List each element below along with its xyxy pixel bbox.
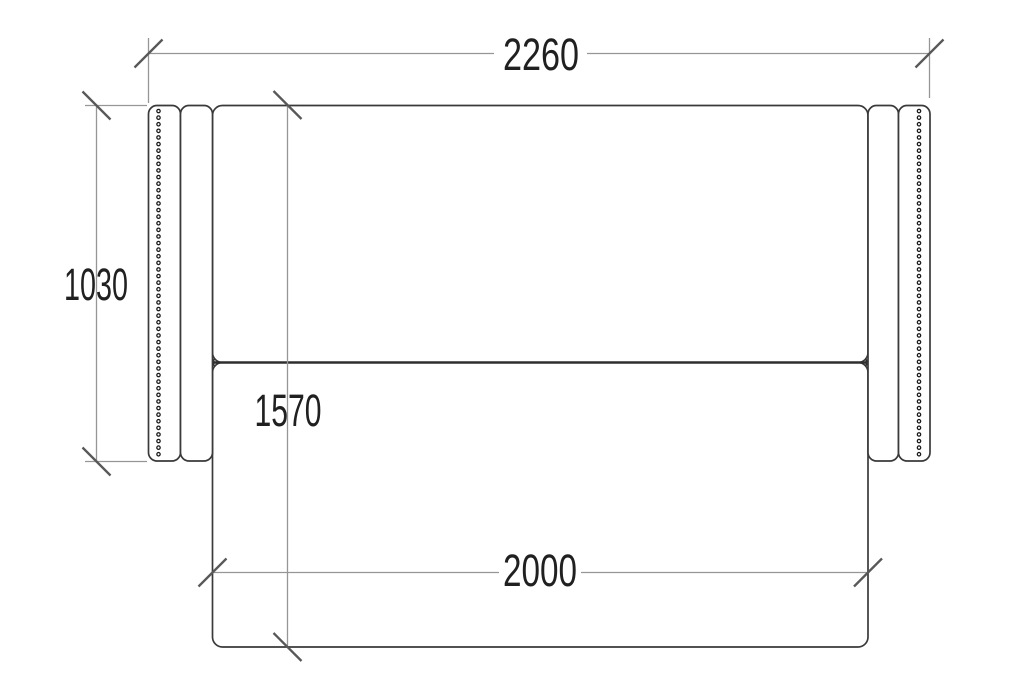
dim-label-bed-width: 2000 (503, 545, 577, 596)
right-armrest (868, 106, 930, 462)
sofa-body-upper (213, 106, 869, 363)
dim-label-overall-width: 2260 (503, 29, 579, 80)
dim-overall-width: 2260 (135, 29, 944, 103)
dim-label-unfolded-depth: 1570 (255, 385, 322, 436)
right-armrest-inner-pad (868, 106, 899, 462)
left-armrest-inner-pad (181, 106, 213, 462)
left-armrest-outer-pad (149, 106, 181, 462)
dim-sofa-depth: 1030 (64, 92, 147, 476)
sofa-bed-plan-drawing: 2260 1030 1570 2000 (0, 0, 1030, 686)
right-armrest-outer-pad (899, 106, 931, 462)
dim-label-sofa-depth: 1030 (64, 259, 128, 310)
technical-drawing-canvas: 2260 1030 1570 2000 (0, 0, 1030, 686)
left-armrest (149, 106, 213, 462)
